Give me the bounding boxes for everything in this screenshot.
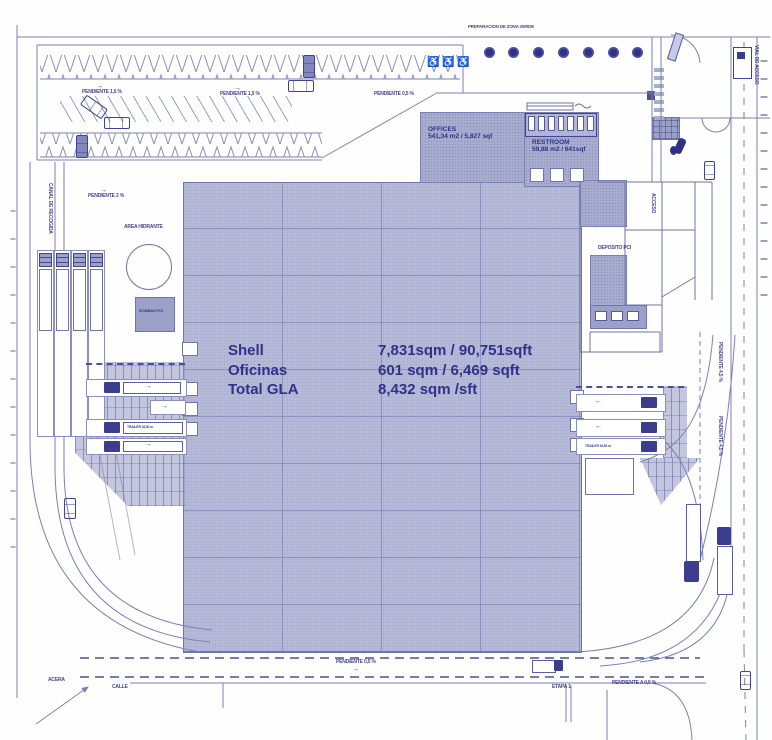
tree-icon xyxy=(583,47,594,58)
tree-icon xyxy=(632,47,643,58)
dock-lane: TRAILER 16,50 m xyxy=(576,438,666,455)
summary-row-shell: Shell 7,831sqm / 90,751sqft xyxy=(228,341,568,361)
trailer-length-label: TRAILER 16,50 m xyxy=(585,444,611,449)
tree-icon xyxy=(533,47,544,58)
micro-label-slope: PENDIENTE 1,5 % xyxy=(82,90,122,95)
dock-door xyxy=(182,342,198,356)
accessible-parking-icon: ♿ xyxy=(442,58,454,68)
fixture xyxy=(587,116,594,131)
summary-value: 7,831sqm / 90,751sqft xyxy=(378,341,532,361)
car-icon xyxy=(76,135,88,158)
micro-label-slope: PENDIENTE 0,5 % xyxy=(374,92,414,97)
tree-icon xyxy=(484,47,495,58)
restroom-stall xyxy=(570,168,584,182)
accessible-parking-icon: ♿ xyxy=(457,58,469,68)
truck-cab-icon xyxy=(641,441,657,452)
summary-label: Shell xyxy=(228,341,378,361)
ramp-pad xyxy=(585,458,634,495)
direction-arrow: ← xyxy=(595,398,602,405)
truck-trailer-icon xyxy=(123,382,181,394)
truck-cab-icon xyxy=(90,253,103,267)
truck-stall xyxy=(71,250,88,437)
truck-cab-icon xyxy=(641,397,657,408)
micro-label-slope: PENDIENTE 0,5 % xyxy=(336,660,376,665)
restroom-label: RESTROOM 59,88 m2 / 641sqf xyxy=(532,139,585,153)
truck-trailer-icon xyxy=(56,269,69,331)
dock-edge-marking xyxy=(576,386,684,388)
site-plan-canvas: ♿ ♿ ♿ → → TR xyxy=(0,0,772,740)
car-icon xyxy=(704,161,715,180)
tree-icon xyxy=(608,47,619,58)
truck-cab-icon xyxy=(554,660,563,671)
direction-arrow: ← xyxy=(595,423,602,430)
summary-row-total-gla: Total GLA 8,432 sqm /sft xyxy=(228,380,568,400)
micro-label-deposit: DEPOSITO PCI xyxy=(598,246,631,251)
storm-tank-circle xyxy=(126,244,172,290)
summary-value: 601 sqm / 6,469 sqft xyxy=(378,361,520,381)
direction-arrow: → xyxy=(161,403,168,410)
micro-label-slope: PENDIENTE A 0,5 % xyxy=(612,681,656,686)
dock-lane-short: → xyxy=(150,400,186,415)
truck-stall xyxy=(37,250,54,437)
car-icon xyxy=(740,671,751,690)
micro-label-slope: PENDIENTE 4,5 % xyxy=(717,416,722,456)
accessible-parking-icon: ♿ xyxy=(427,58,439,68)
motorcycle-wheel-icon xyxy=(670,146,677,155)
restroom-stall xyxy=(530,168,544,182)
micro-label-slope: PENDIENTE 1,5 % xyxy=(220,92,260,97)
micro-label-hydrant: AREA HIDRANTE xyxy=(124,225,163,230)
truck-cab-icon xyxy=(717,527,731,545)
summary-label: Total GLA xyxy=(228,380,378,400)
truck-trailer-icon xyxy=(123,441,183,452)
fixture xyxy=(558,116,565,131)
dock-lane: ← xyxy=(576,419,666,437)
truck-trailer-icon xyxy=(90,269,103,331)
fixture xyxy=(577,116,584,131)
truck-trailer-icon xyxy=(717,546,733,595)
car-icon xyxy=(303,55,315,78)
offices-label: OFFICES 541,34 m2 / 5,827 sqf xyxy=(428,126,492,140)
offices-area: 541,34 m2 / 5,827 sqf xyxy=(428,133,492,140)
micro-label-pump: BOMBAS PCI xyxy=(139,308,163,313)
truck-cab-icon xyxy=(104,422,120,433)
tree-icon xyxy=(508,47,519,58)
truck-cab-icon xyxy=(641,422,657,433)
restroom-name: RESTROOM xyxy=(532,139,585,146)
micro-label-street: CALLE xyxy=(112,685,128,690)
direction-arrow: → xyxy=(352,666,359,673)
dock-lane: → xyxy=(86,438,187,455)
truck-cab-icon xyxy=(56,253,69,267)
summary-value: 8,432 sqm /sft xyxy=(378,380,477,400)
truck-stall xyxy=(88,250,105,437)
micro-label-slope: PENDIENTE 4,5 % xyxy=(717,342,722,382)
micro-label-canal: CANAL DE RECOGIDA xyxy=(47,183,52,234)
direction-arrow: → xyxy=(145,383,152,390)
truck-cab-icon xyxy=(39,253,52,267)
fixture xyxy=(528,116,535,131)
fixture xyxy=(567,116,574,131)
truck-cab-icon xyxy=(684,561,699,582)
truck-stall xyxy=(54,250,71,437)
restroom-area: 59,88 m2 / 641sqf xyxy=(532,146,585,153)
trailer-length-label: TRAILER 16,50 m xyxy=(127,425,153,430)
micro-label-slope: PENDIENTE 2 % xyxy=(88,194,124,199)
car-icon xyxy=(288,80,314,92)
truck-cab-icon xyxy=(73,253,86,267)
restroom-stall xyxy=(550,168,564,182)
summary-label: Oficinas xyxy=(228,361,378,381)
tree-icon xyxy=(558,47,569,58)
truck-cab-icon xyxy=(104,382,120,393)
guard-booth xyxy=(733,47,752,79)
truck-trailer-icon xyxy=(532,660,556,673)
booth-window xyxy=(737,52,745,59)
dock-lane: TRAILER 16,50 m xyxy=(86,419,187,437)
truck-cab-icon xyxy=(104,441,120,452)
fixture xyxy=(548,116,555,131)
micro-label-stage: ETAPA 1 xyxy=(552,685,571,690)
micro-label-access: VIAL DE ACCESO xyxy=(753,45,758,84)
fixture xyxy=(538,116,545,131)
truck-trailer-icon xyxy=(686,504,701,562)
dock-lane: → xyxy=(86,379,187,397)
offices-name: OFFICES xyxy=(428,126,492,133)
truck-trailer-icon xyxy=(39,269,52,331)
road-dash-markings xyxy=(80,658,706,677)
car-icon xyxy=(104,117,130,129)
dock-edge-marking xyxy=(86,363,185,365)
micro-label-green-zone: PREPARACION DE ZONA VERDE xyxy=(468,24,534,29)
area-summary: Shell 7,831sqm / 90,751sqft Oficinas 601… xyxy=(228,341,568,400)
dock-lane: ← xyxy=(576,394,666,412)
car-icon xyxy=(64,498,76,519)
truck-trailer-icon xyxy=(73,269,86,331)
summary-row-oficinas: Oficinas 601 sqm / 6,469 sqft xyxy=(228,361,568,381)
direction-arrow: → xyxy=(145,441,152,448)
micro-label-sidewalk: ACERA xyxy=(48,678,65,683)
micro-label-entry: ACCESO xyxy=(650,193,655,213)
restroom-fixtures xyxy=(525,113,597,137)
